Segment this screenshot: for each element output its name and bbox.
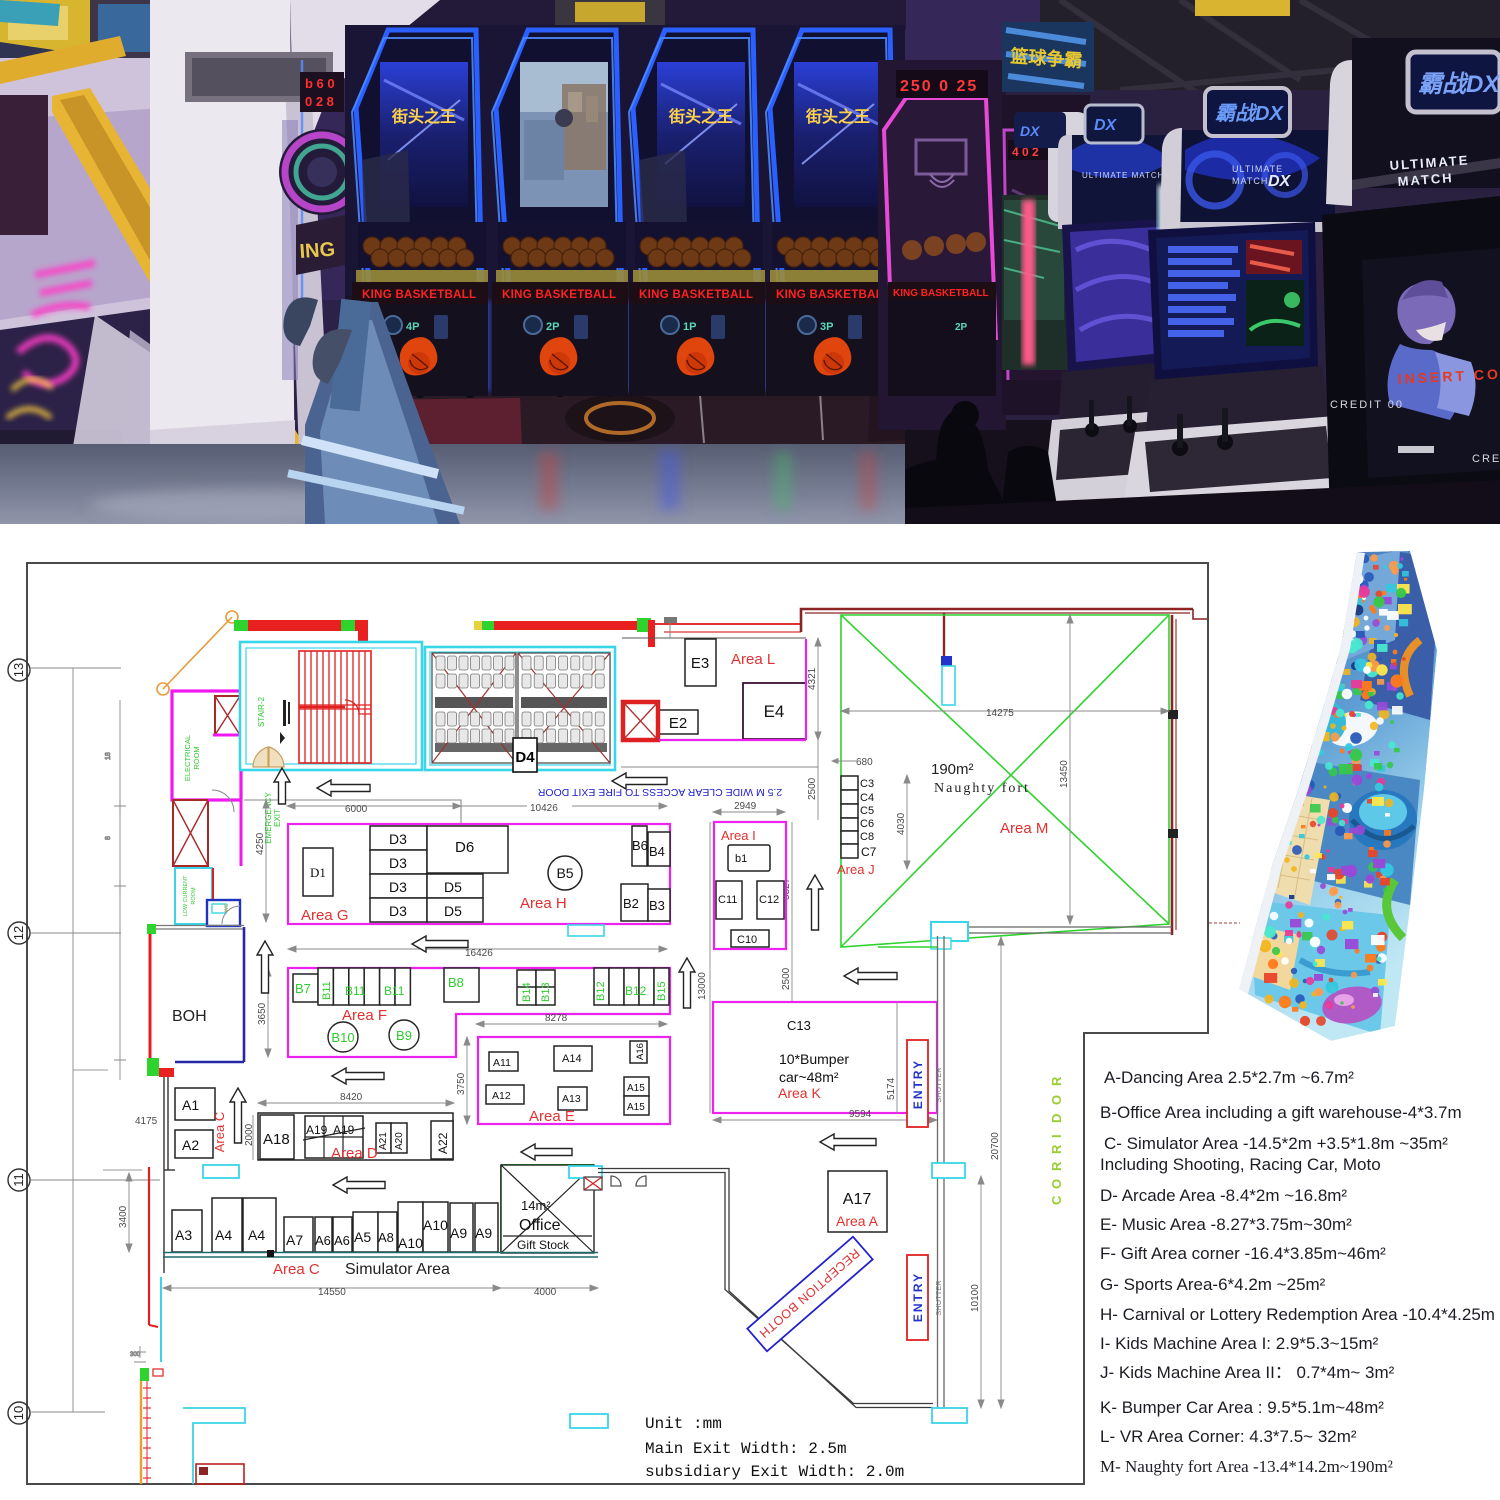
- svg-text:Area D: Area D: [331, 1145, 378, 1162]
- svg-text:Unit :mm: Unit :mm: [645, 1415, 722, 1433]
- svg-text:14m²: 14m²: [521, 1198, 551, 1213]
- svg-text:A10: A10: [398, 1235, 423, 1251]
- svg-text:A5: A5: [354, 1229, 371, 1245]
- svg-text:C11: C11: [718, 894, 737, 906]
- svg-text:2949: 2949: [734, 801, 757, 812]
- svg-text:4030: 4030: [896, 812, 907, 835]
- svg-text:subsidiary Exit Width: 2.0m: subsidiary Exit Width: 2.0m: [645, 1463, 904, 1481]
- svg-text:20700: 20700: [990, 1132, 1001, 1160]
- svg-text:Area E: Area E: [529, 1108, 575, 1125]
- svg-text:霸战DX: 霸战DX: [1418, 71, 1500, 98]
- svg-text:Simulator Area: Simulator Area: [345, 1261, 450, 1278]
- svg-text:DX: DX: [1268, 173, 1292, 190]
- svg-text:A14: A14: [562, 1053, 582, 1065]
- svg-text:B8: B8: [448, 975, 464, 990]
- svg-text:B12: B12: [595, 981, 607, 1001]
- svg-text:STAIR-2: STAIR-2: [257, 696, 266, 727]
- svg-text:190m²: 190m²: [931, 761, 974, 778]
- svg-text:B15: B15: [656, 981, 668, 1001]
- svg-text:SHUTTER: SHUTTER: [934, 1280, 943, 1316]
- svg-text:Area M: Area M: [1000, 820, 1048, 837]
- svg-text:Area I: Area I: [721, 828, 756, 843]
- svg-text:Naughty fort: Naughty fort: [934, 781, 1030, 796]
- svg-text:DX: DX: [1094, 117, 1118, 134]
- svg-text:b1: b1: [735, 853, 747, 865]
- svg-text:C10: C10: [737, 934, 757, 946]
- svg-text:A4: A4: [248, 1227, 265, 1243]
- svg-text:5174: 5174: [886, 1077, 897, 1100]
- svg-text:13: 13: [11, 663, 26, 677]
- svg-text:O: O: [1049, 1095, 1064, 1105]
- svg-text:霸战DX: 霸战DX: [1215, 102, 1284, 125]
- svg-text:3750: 3750: [456, 1072, 467, 1095]
- svg-text:1P: 1P: [683, 321, 696, 333]
- svg-text:A22: A22: [436, 1132, 450, 1154]
- svg-text:A6: A6: [315, 1233, 331, 1248]
- svg-text:C12: C12: [759, 894, 779, 906]
- svg-text:街头之王: 街头之王: [391, 107, 456, 126]
- svg-text:ELECTRICAL: ELECTRICAL: [183, 735, 192, 781]
- svg-text:KING BASKETBALL: KING BASKETBALL: [362, 289, 476, 301]
- svg-text:A18: A18: [263, 1131, 290, 1148]
- svg-text:Area A: Area A: [836, 1213, 879, 1229]
- svg-text:B4: B4: [649, 844, 665, 859]
- svg-text:2.5 M WIDE CLEAR ACCESS TO FIR: 2.5 M WIDE CLEAR ACCESS TO FIRE EXIT DOO…: [537, 786, 782, 798]
- svg-text:Area H: Area H: [520, 895, 567, 912]
- svg-text:R: R: [1049, 1161, 1064, 1171]
- svg-text:B12: B12: [625, 984, 647, 998]
- svg-text:MATCH: MATCH: [1232, 176, 1268, 186]
- svg-text:9594: 9594: [849, 1109, 872, 1120]
- svg-text:A2: A2: [182, 1137, 199, 1153]
- svg-text:Area G: Area G: [301, 907, 349, 924]
- svg-text:B11: B11: [321, 981, 333, 1000]
- svg-text:A4: A4: [215, 1227, 232, 1243]
- svg-text:A21: A21: [378, 1132, 389, 1150]
- svg-text:B10: B10: [331, 1030, 354, 1045]
- svg-text:3650: 3650: [257, 1002, 268, 1025]
- svg-text:A3: A3: [175, 1227, 192, 1243]
- svg-text:12: 12: [11, 926, 26, 940]
- svg-text:C: C: [1049, 1195, 1064, 1205]
- svg-text:I- Kids Machine Area I: 2.9*5: I- Kids Machine Area I: 2.9*5.3~15m²: [1100, 1334, 1379, 1353]
- svg-text:B14: B14: [521, 982, 533, 1002]
- svg-text:A15: A15: [627, 1102, 645, 1113]
- svg-text:D3: D3: [389, 855, 407, 871]
- svg-text:2P: 2P: [546, 321, 559, 333]
- svg-text:Area J: Area J: [837, 862, 875, 877]
- svg-text:B11: B11: [345, 984, 366, 998]
- svg-text:10*Bumper: 10*Bumper: [779, 1051, 849, 1067]
- svg-text:4321: 4321: [807, 667, 818, 690]
- svg-text:C3: C3: [860, 778, 874, 790]
- svg-text:B3: B3: [649, 898, 665, 913]
- svg-text:car~48m²: car~48m²: [779, 1069, 839, 1085]
- svg-text:B6: B6: [632, 838, 648, 853]
- svg-text:A6: A6: [334, 1233, 350, 1248]
- svg-text:4000: 4000: [534, 1287, 557, 1298]
- svg-text:ING: ING: [299, 239, 336, 263]
- svg-text:街头之王: 街头之王: [805, 107, 870, 126]
- svg-text:4P: 4P: [406, 321, 419, 333]
- svg-text:4250: 4250: [255, 832, 266, 855]
- svg-text:A16: A16: [635, 1043, 646, 1060]
- svg-text:KING BASKETBALL: KING BASKETBALL: [639, 289, 753, 301]
- svg-text:D5: D5: [444, 879, 462, 895]
- svg-text:SHUTTER: SHUTTER: [934, 1067, 943, 1103]
- svg-text:A7: A7: [286, 1232, 303, 1248]
- svg-text:C8: C8: [860, 831, 874, 843]
- svg-text:H- Carnival or Lottery Redempt: H- Carnival or Lottery Redemption Area -…: [1100, 1305, 1495, 1324]
- svg-text:ROOM: ROOM: [192, 746, 201, 769]
- svg-text:B13: B13: [540, 982, 552, 1002]
- svg-text:B7: B7: [295, 981, 311, 996]
- svg-text:A9: A9: [475, 1225, 492, 1241]
- svg-text:Area C: Area C: [273, 1261, 320, 1278]
- svg-text:0 2 8: 0 2 8: [305, 94, 334, 109]
- svg-text:DX: DX: [1020, 123, 1041, 139]
- svg-text:D3: D3: [389, 903, 407, 919]
- svg-text:C5: C5: [860, 805, 874, 817]
- svg-text:13450: 13450: [1059, 760, 1070, 788]
- svg-text:2500: 2500: [781, 967, 792, 990]
- svg-text:8: 8: [105, 836, 112, 840]
- svg-text:A8: A8: [378, 1230, 394, 1245]
- svg-text:D1: D1: [310, 865, 326, 880]
- svg-text:L- VR Area Corner: 4.3*7.5~ 3: L- VR Area Corner: 4.3*7.5~ 32m²: [1100, 1427, 1357, 1446]
- svg-text:2500: 2500: [807, 777, 818, 800]
- svg-text:D5: D5: [444, 903, 462, 919]
- svg-text:8420: 8420: [340, 1092, 363, 1103]
- svg-text:K- Bumper Car Area : 9.5*5.1m: K- Bumper Car Area : 9.5*5.1m~48m²: [1100, 1398, 1384, 1417]
- svg-text:BOH: BOH: [172, 1008, 207, 1025]
- svg-text:3400: 3400: [118, 1205, 129, 1228]
- svg-text:KING BASKETBALL: KING BASKETBALL: [776, 289, 890, 301]
- svg-text:16426: 16426: [465, 948, 493, 959]
- svg-text:Area K: Area K: [778, 1085, 821, 1101]
- svg-text:D: D: [1049, 1114, 1064, 1123]
- svg-text:A10: A10: [423, 1217, 448, 1233]
- svg-text:D3: D3: [389, 831, 407, 847]
- svg-text:ENTRY: ENTRY: [911, 1272, 925, 1322]
- svg-text:M- Naughty fort Area -13.4*14: M- Naughty fort Area -13.4*14.2m~190m²: [1100, 1457, 1393, 1476]
- svg-text:E4: E4: [764, 702, 785, 721]
- svg-text:14275: 14275: [986, 708, 1014, 719]
- svg-text:Office: Office: [519, 1217, 561, 1234]
- svg-text:C4: C4: [860, 792, 874, 804]
- svg-text:E3: E3: [691, 655, 709, 672]
- svg-text:A20: A20: [394, 1132, 405, 1150]
- svg-text:J- Kids Machine Area II： 0.7: J- Kids Machine Area II： 0.7*4m~ 3m²: [1100, 1363, 1395, 1382]
- svg-text:3P: 3P: [820, 321, 833, 333]
- svg-text:B-Office Area including a gif: B-Office Area including a gift warehouse…: [1100, 1103, 1462, 1122]
- svg-text:10426: 10426: [530, 803, 558, 814]
- svg-text:A17: A17: [843, 1191, 872, 1208]
- svg-text:KING BASKETBALL: KING BASKETBALL: [893, 288, 989, 299]
- svg-text:B5: B5: [556, 865, 573, 881]
- svg-text:E- Music Area -8.27*3.75m~30m²: E- Music Area -8.27*3.75m~30m²: [1100, 1215, 1352, 1234]
- svg-text:G- Sports Area-6*4.2m ~25m²: G- Sports Area-6*4.2m ~25m²: [1100, 1275, 1326, 1294]
- svg-text:街头之王: 街头之王: [668, 107, 733, 126]
- svg-text:A11: A11: [493, 1057, 511, 1069]
- svg-text:A1: A1: [182, 1097, 199, 1113]
- svg-text:R: R: [1049, 1076, 1064, 1086]
- svg-text:B9: B9: [396, 1028, 412, 1043]
- svg-text:D- Arcade Area -8.4*2m ~16.8m²: D- Arcade Area -8.4*2m ~16.8m²: [1100, 1186, 1347, 1205]
- svg-text:6000: 6000: [345, 804, 368, 815]
- svg-text:B2: B2: [623, 896, 639, 911]
- svg-text:Including Shooting, Racing Car: Including Shooting, Racing Car, Moto: [1100, 1155, 1381, 1174]
- svg-text:A15: A15: [627, 1083, 645, 1094]
- svg-text:KING BASKETBALL: KING BASKETBALL: [502, 289, 616, 301]
- svg-text:CREDIT 00: CREDIT 00: [1330, 399, 1404, 411]
- svg-text:ROOM: ROOM: [191, 887, 197, 905]
- svg-text:10100: 10100: [970, 1284, 981, 1312]
- svg-text:Main Exit Width: 2.5m: Main Exit Width: 2.5m: [645, 1440, 847, 1458]
- svg-text:C- Simulator Area -14.5*2m +3.: C- Simulator Area -14.5*2m +3.5*1.8m ~35…: [1104, 1134, 1448, 1153]
- svg-text:A12: A12: [492, 1090, 511, 1102]
- svg-text:EXIT: EXIT: [273, 809, 282, 827]
- svg-text:D6: D6: [455, 839, 474, 856]
- svg-text:Area L: Area L: [731, 651, 775, 668]
- svg-text:R: R: [1049, 1144, 1064, 1154]
- svg-text:4175: 4175: [135, 1116, 158, 1127]
- svg-text:LOW CURRENT: LOW CURRENT: [183, 875, 189, 917]
- svg-text:2000: 2000: [244, 1123, 255, 1146]
- svg-text:Area F: Area F: [342, 1007, 387, 1024]
- svg-text:A19: A19: [306, 1123, 328, 1137]
- svg-text:C6: C6: [860, 818, 874, 830]
- svg-text:10: 10: [11, 1406, 26, 1420]
- svg-text:B11: B11: [384, 984, 405, 998]
- svg-text:E2: E2: [669, 715, 687, 732]
- svg-text:14550: 14550: [318, 1287, 346, 1298]
- svg-text:ULTIMATE MATCH: ULTIMATE MATCH: [1082, 171, 1164, 180]
- svg-text:250 0 25: 250 0 25: [900, 78, 978, 95]
- svg-text:I: I: [1049, 1134, 1064, 1138]
- svg-text:2P: 2P: [955, 322, 968, 333]
- svg-text:8278: 8278: [545, 1013, 568, 1024]
- svg-text:D4: D4: [515, 749, 535, 766]
- svg-text:ENTRY: ENTRY: [911, 1059, 925, 1109]
- svg-text:O: O: [1049, 1179, 1064, 1189]
- svg-text:A9: A9: [450, 1225, 467, 1241]
- svg-text:A-Dancing Area 2.5*2.7m ~6.7m²: A-Dancing Area 2.5*2.7m ~6.7m²: [1104, 1068, 1354, 1087]
- svg-text:11: 11: [11, 1173, 26, 1187]
- svg-text:300: 300: [130, 1352, 141, 1358]
- svg-text:F- Gift Area corner -16.4*3.85: F- Gift Area corner -16.4*3.85m~46m²: [1100, 1244, 1386, 1263]
- svg-text:18: 18: [105, 752, 112, 760]
- svg-text:A13: A13: [562, 1093, 581, 1105]
- svg-text:D3: D3: [389, 879, 407, 895]
- svg-text:b 6 0: b 6 0: [305, 76, 335, 91]
- svg-text:WC: WC: [224, 903, 230, 912]
- svg-text:13000: 13000: [697, 972, 708, 1000]
- svg-text:Area C: Area C: [212, 1112, 227, 1152]
- svg-text:C13: C13: [787, 1018, 811, 1033]
- svg-text:RECEPTION BOOTH: RECEPTION BOOTH: [756, 1246, 862, 1341]
- svg-text:CRE: CRE: [1472, 453, 1500, 465]
- svg-text:680: 680: [856, 757, 873, 768]
- svg-text:C7: C7: [861, 845, 877, 859]
- svg-text:Gift Stock: Gift Stock: [517, 1238, 570, 1252]
